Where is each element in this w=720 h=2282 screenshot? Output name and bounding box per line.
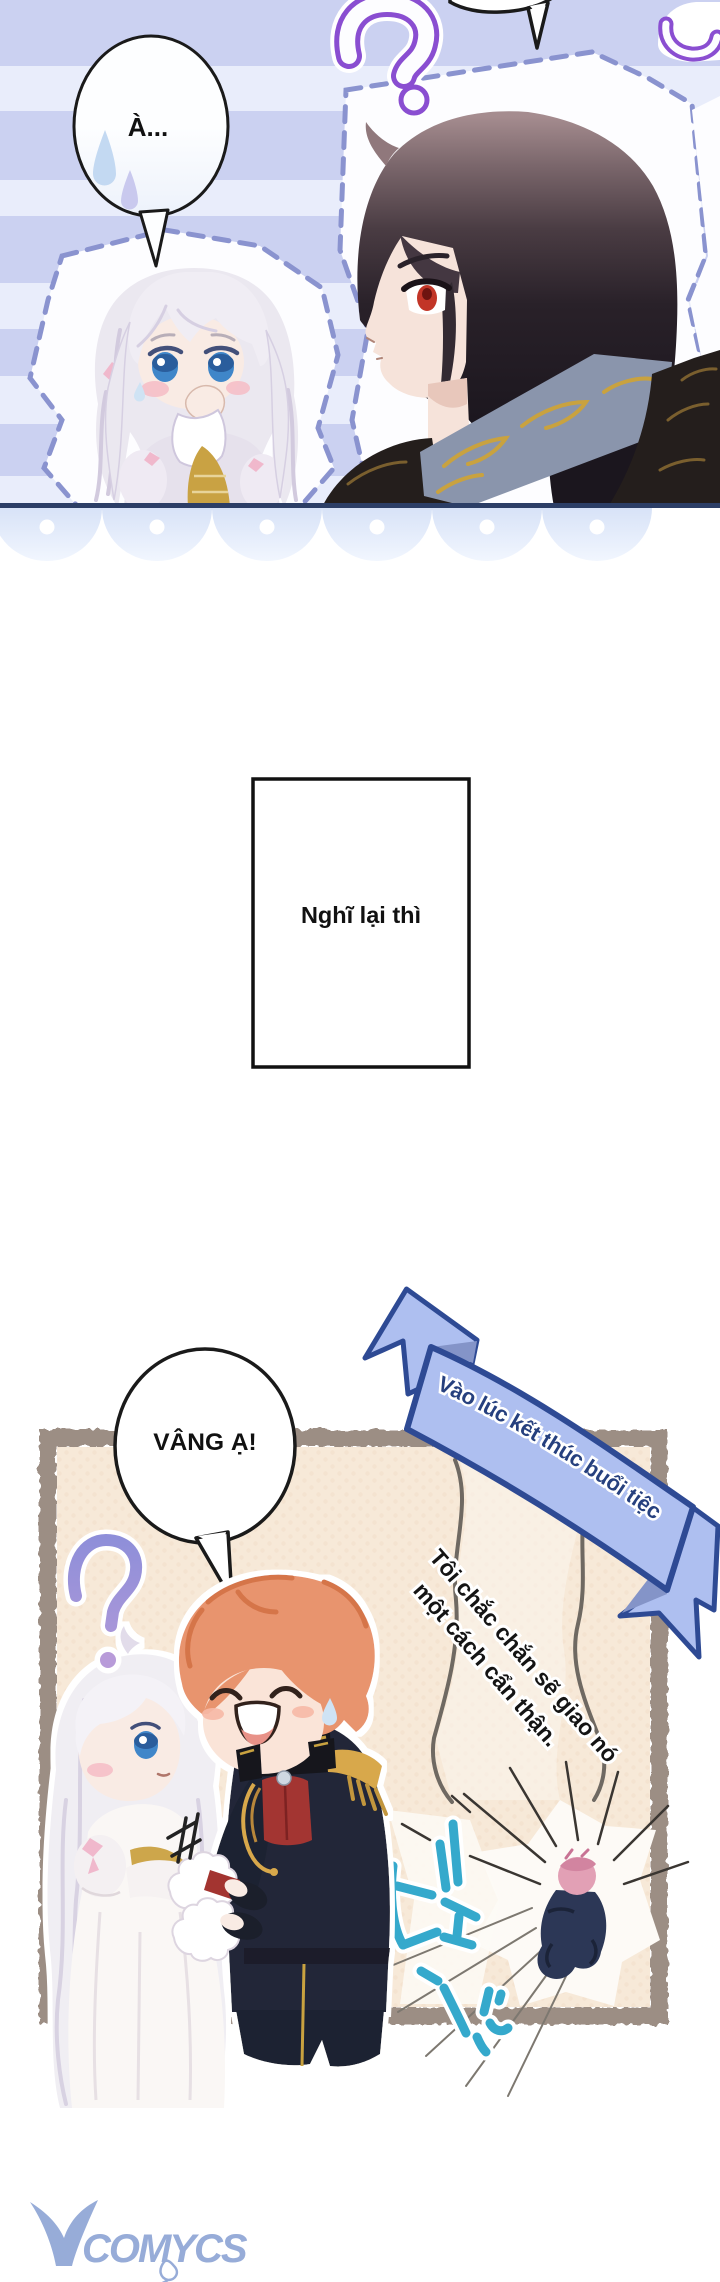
svg-text:À...: À... — [128, 112, 168, 142]
svg-text:Nghĩ lại thì: Nghĩ lại thì — [301, 902, 421, 928]
svg-text:VÂNG Ạ!: VÂNG Ạ! — [153, 1428, 256, 1456]
svg-text:COMYCS: COMYCS — [82, 2227, 248, 2271]
